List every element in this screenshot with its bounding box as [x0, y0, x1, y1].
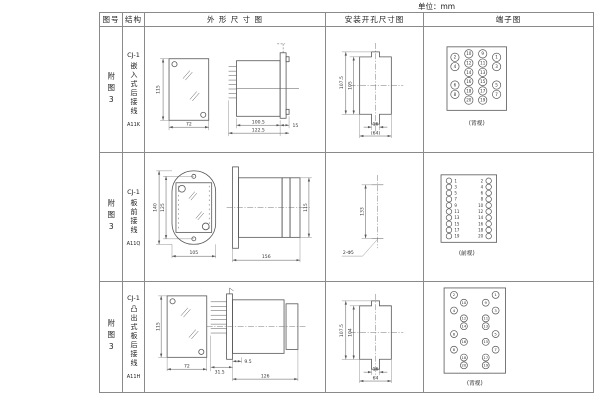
svg-text:4: 4 [481, 184, 484, 189]
svg-text:20: 20 [478, 234, 484, 239]
dim-label: 107.5 [339, 76, 345, 89]
svg-text:3: 3 [494, 309, 497, 313]
terminal-diagram-a11q: 1234567891011121314151617181920 (前视) [424, 153, 593, 281]
terminal-pins: 1234567891011121314151617181920 [446, 178, 491, 239]
svg-text:7: 7 [494, 348, 497, 352]
svg-text:13: 13 [454, 215, 460, 220]
svg-text:14: 14 [462, 325, 467, 329]
svg-text:20: 20 [462, 364, 467, 368]
svg-text:10: 10 [466, 51, 472, 56]
svg-text:12: 12 [478, 209, 484, 214]
dim-label: 105 [348, 81, 354, 90]
svg-text:10: 10 [462, 301, 467, 305]
type-code: A11Q [127, 241, 141, 247]
side-view-drawing [229, 44, 299, 118]
dim-label: 72 [184, 364, 190, 370]
fig-no-label: 附图3 [107, 72, 115, 108]
svg-text:4: 4 [454, 64, 457, 69]
view-label: (前视) [459, 249, 475, 257]
view-label: (背视) [469, 119, 485, 127]
terminal-cell-row3: 2110943121114136516158718172019 (背视) [424, 282, 594, 393]
front-view-drawing [172, 171, 216, 244]
svg-text:5: 5 [495, 83, 498, 88]
structure-desc: 嵌入式后接线 [130, 62, 137, 116]
fig-no-label: 附图3 [107, 319, 115, 355]
svg-text:10: 10 [478, 203, 484, 208]
structure-desc: 凸出式板后接线 [130, 305, 137, 368]
dim-label: 115 [156, 322, 162, 331]
svg-text:16: 16 [478, 221, 484, 226]
hole-callout: 2-Φ5 [343, 250, 354, 256]
svg-text:7: 7 [495, 92, 498, 97]
svg-text:6: 6 [481, 191, 484, 196]
dim-label: 122.5 [252, 128, 265, 134]
outline-cell-row2: 140 125 105 156 115 [145, 153, 326, 282]
svg-text:9: 9 [454, 203, 457, 208]
svg-text:11: 11 [483, 317, 488, 321]
svg-text:17: 17 [454, 227, 460, 232]
dim-label: 64 [373, 376, 379, 382]
svg-text:18: 18 [462, 356, 467, 360]
svg-text:13: 13 [480, 70, 486, 75]
dim-label: 126 [261, 374, 270, 380]
svg-text:2: 2 [481, 178, 484, 183]
outline-cell-row1: 115 72 100.5 15 122.5 [145, 27, 326, 153]
dim-label: 105 [189, 250, 198, 256]
fig-no-cell-row2: 附图3 [100, 153, 123, 282]
dim-label: 115 [303, 203, 309, 212]
front-view-drawing [169, 59, 209, 121]
dim-label: 133 [360, 207, 366, 216]
terminal-diagram-a11h: 2110943121114136516158718172019 (背视) [424, 282, 593, 392]
side-view-drawing [211, 288, 298, 359]
dim-label: 115 [156, 85, 162, 94]
outline-diagram-a11q: 140 125 105 156 115 [145, 153, 325, 281]
view-label: (背视) [467, 379, 483, 387]
dim-label: (64) [371, 131, 381, 137]
dim-label: 72 [186, 122, 192, 128]
svg-text:8: 8 [453, 348, 456, 352]
svg-text:1: 1 [494, 293, 497, 297]
unit-label: 单位：mm [418, 1, 455, 12]
svg-text:15: 15 [480, 79, 486, 84]
dim-label: 140 [153, 203, 159, 212]
fig-no-cell-row3: 附图3 [100, 282, 123, 393]
svg-text:9: 9 [481, 51, 484, 56]
svg-text:12: 12 [462, 317, 467, 321]
dim-label: 100.5 [252, 120, 265, 126]
svg-text:18: 18 [466, 88, 472, 93]
svg-text:19: 19 [483, 364, 488, 368]
dim-label: 9.5 [244, 359, 251, 365]
svg-text:12: 12 [466, 61, 472, 66]
svg-text:1: 1 [454, 178, 457, 183]
structure-cell-row2: CJ-1 板前接线 A11Q [123, 153, 145, 282]
fig-no-label: 附图3 [107, 199, 115, 235]
fig-no-cell-row1: 附图3 [100, 27, 123, 153]
svg-text:15: 15 [483, 340, 488, 344]
svg-text:8: 8 [481, 197, 484, 202]
dim-label: 156 [262, 254, 271, 260]
dimension-table: 图号 结构 外 形 尺 寸 图 安装开孔尺寸图 端子图 附图3 CJ-1 嵌入式… [99, 12, 594, 393]
svg-text:5: 5 [454, 191, 457, 196]
col-header-install: 安装开孔尺寸图 [326, 13, 424, 27]
svg-text:20: 20 [466, 98, 472, 103]
svg-text:16: 16 [466, 79, 472, 84]
svg-text:1: 1 [495, 55, 498, 60]
install-diagram-a11h: 107.5 104 16 64 [326, 282, 423, 392]
svg-text:19: 19 [480, 98, 486, 103]
model-label: CJ-1 [127, 51, 140, 59]
structure-desc: 板前接线 [130, 199, 137, 235]
terminal-cell-row1: 2109141211314136161558181772019 (背视) [424, 27, 594, 153]
col-header-structure: 结构 [123, 13, 145, 27]
install-diagram-a11q: 133 2-Φ5 [326, 153, 423, 281]
model-label: CJ-1 [127, 294, 140, 302]
svg-text:8: 8 [454, 92, 457, 97]
install-diagram-a11k: 107.5 105 16 (64) [326, 27, 423, 152]
outline-diagram-a11k: 115 72 100.5 15 122.5 [145, 27, 325, 152]
structure-cell-row3: CJ-1 凸出式板后接线 A11H [123, 282, 145, 393]
svg-text:19: 19 [454, 234, 460, 239]
svg-text:6: 6 [454, 83, 457, 88]
svg-text:11: 11 [480, 61, 486, 66]
dim-label: 125 [160, 203, 166, 212]
dim-label: 16 [373, 122, 379, 128]
dim-label: 104 [348, 328, 354, 337]
dim-label: 107.5 [339, 324, 345, 337]
dim-label: 15 [293, 123, 299, 129]
install-cell-row2: 133 2-Φ5 [326, 153, 424, 282]
svg-text:9: 9 [485, 301, 488, 305]
terminal-cell-row2: 1234567891011121314151617181920 (前视) [424, 153, 594, 282]
svg-text:16: 16 [462, 340, 467, 344]
structure-cell-row1: CJ-1 嵌入式后接线 A11K [123, 27, 145, 153]
svg-text:2: 2 [454, 55, 457, 60]
svg-text:15: 15 [454, 221, 460, 226]
col-header-terminal: 端子图 [424, 13, 594, 27]
svg-text:14: 14 [478, 215, 484, 220]
svg-text:14: 14 [466, 70, 472, 75]
svg-text:2: 2 [453, 293, 456, 297]
svg-text:18: 18 [478, 227, 484, 232]
svg-text:11: 11 [454, 209, 460, 214]
svg-text:17: 17 [483, 356, 488, 360]
svg-text:17: 17 [480, 88, 486, 93]
svg-text:13: 13 [483, 325, 488, 329]
spec-sheet: 单位：mm 图号 结构 外 形 尺 寸 图 安装开孔尺寸图 端子图 附图3 CJ… [0, 0, 600, 400]
front-view-drawing [167, 296, 207, 357]
install-cell-row3: 107.5 104 16 64 [326, 282, 424, 393]
col-header-fig-no: 图号 [100, 13, 123, 27]
terminal-diagram-a11k: 2109141211314136161558181772019 (背视) [424, 27, 593, 152]
col-header-outline: 外 形 尺 寸 图 [145, 13, 326, 27]
svg-text:6: 6 [453, 332, 456, 336]
terminal-pins: 2110943121114136516158718172019 [451, 291, 500, 368]
svg-text:5: 5 [494, 332, 497, 336]
dim-label: 16 [373, 367, 379, 373]
outline-diagram-a11h: 115 72 31.5 9.5 126 [145, 282, 325, 392]
svg-text:3: 3 [454, 184, 457, 189]
terminal-pins: 2109141211314136161558181772019 [451, 50, 501, 105]
install-cell-row1: 107.5 105 16 (64) [326, 27, 424, 153]
svg-text:3: 3 [495, 64, 498, 69]
svg-text:7: 7 [454, 197, 457, 202]
dim-label: 31.5 [215, 370, 225, 376]
type-code: A11K [127, 122, 140, 128]
type-code: A11H [127, 374, 141, 380]
outline-cell-row3: 115 72 31.5 9.5 126 [145, 282, 326, 393]
svg-text:4: 4 [453, 309, 456, 313]
model-label: CJ-1 [127, 188, 140, 196]
